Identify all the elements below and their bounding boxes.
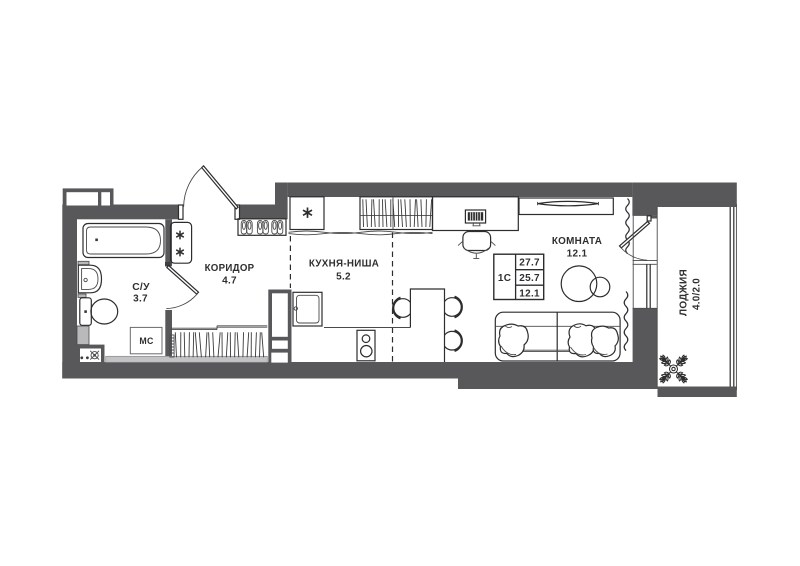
svg-text:25.7: 25.7 <box>519 273 540 284</box>
svg-text:КОРИДОР: КОРИДОР <box>205 263 255 274</box>
svg-text:4.7: 4.7 <box>222 276 237 287</box>
svg-text:4.0/2.0: 4.0/2.0 <box>692 278 703 310</box>
svg-text:КУХНЯ-НИША: КУХНЯ-НИША <box>309 259 379 270</box>
svg-text:27.7: 27.7 <box>519 258 540 269</box>
svg-text:3.7: 3.7 <box>133 293 148 304</box>
svg-text:МС: МС <box>139 336 154 346</box>
svg-text:12.1: 12.1 <box>519 288 540 299</box>
svg-text:5.2: 5.2 <box>336 272 351 283</box>
svg-text:КОМНАТА: КОМНАТА <box>552 236 602 247</box>
svg-text:12.1: 12.1 <box>567 248 588 259</box>
svg-text:ЛОДЖИЯ: ЛОДЖИЯ <box>679 269 690 316</box>
svg-text:1С: 1С <box>498 273 511 284</box>
svg-text:С/У: С/У <box>132 282 150 293</box>
